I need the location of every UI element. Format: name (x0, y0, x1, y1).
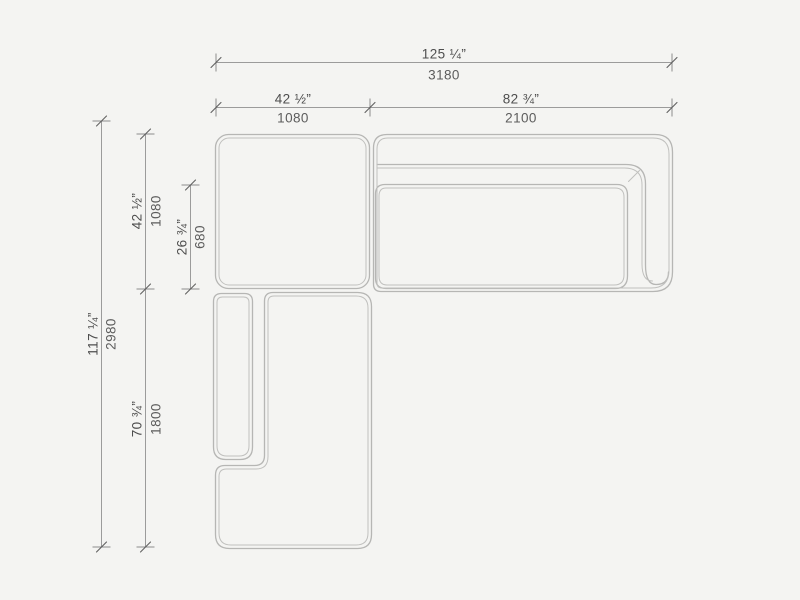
label-overall-depth-mm: 2980 (104, 318, 118, 350)
sofa-inner-lines (217, 138, 669, 545)
armrest-cushion-outline (214, 294, 253, 460)
drawing-canvas (0, 0, 800, 600)
label-chaise-length-inches: 70 ¾” (130, 401, 144, 438)
sofa-dimension-drawing: 125 ¼” 3180 42 ½” 1080 82 ¾” 2100 117 ¼”… (0, 0, 800, 600)
sofa-backrest-inner-edge (377, 165, 669, 285)
dimension-lines (102, 63, 673, 548)
label-chaise-length-mm: 1800 (149, 403, 163, 435)
label-right-section-width-mm: 2100 (505, 111, 537, 125)
sofa-outlines (214, 135, 673, 549)
chaise-module-inner-line (219, 296, 368, 545)
label-right-section-width-inches: 82 ¾” (503, 92, 540, 106)
corner-module-outline (216, 135, 370, 289)
label-left-section-width-inches: 42 ½” (275, 92, 312, 106)
dimension-extension-ticks (93, 54, 673, 548)
corner-module-inner-line (219, 138, 366, 285)
label-corner-depth-mm: 1080 (149, 195, 163, 227)
backrest-miter-line (629, 171, 640, 182)
label-left-section-width-mm: 1080 (277, 111, 309, 125)
chaise-module-outline (216, 293, 372, 549)
label-corner-depth-inches: 42 ½” (130, 193, 144, 230)
armrest-cushion-inner-line (217, 297, 249, 456)
dimension-slash-ticks (97, 58, 678, 553)
label-overall-depth-inches: 117 ¼” (86, 312, 100, 355)
seat-cushion-inner-line (379, 188, 624, 285)
seat-cushion-outline (376, 185, 628, 289)
label-seat-depth-inches: 26 ¾” (175, 219, 189, 256)
label-overall-width-mm: 3180 (428, 68, 460, 82)
label-overall-width-inches: 125 ¼” (422, 47, 466, 61)
sofa-module-inner-line (377, 138, 669, 288)
label-seat-depth-mm: 680 (193, 225, 207, 249)
